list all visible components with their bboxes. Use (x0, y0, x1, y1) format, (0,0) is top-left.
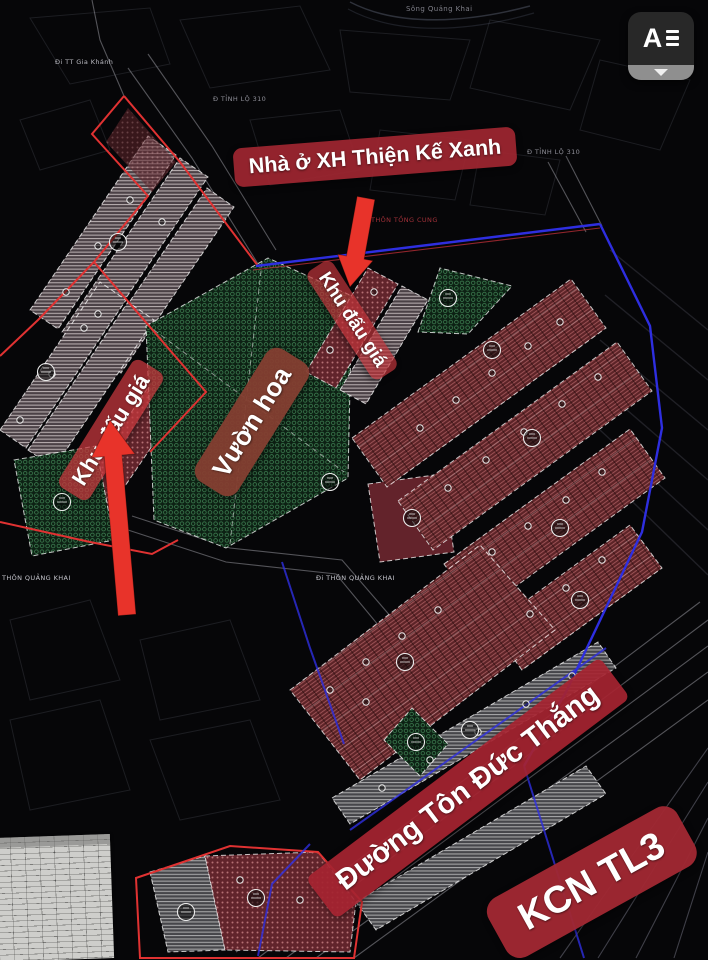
road-label-tl310-right: Đ TỈNH LỘ 310 (527, 148, 580, 156)
road-label-tl310-left: Đ TỈNH LỘ 310 (213, 95, 266, 103)
hamburger-bars-icon (666, 30, 679, 46)
ae-logo-letter: A (643, 25, 663, 52)
road-label-quang-khai: Đi THÔN QUẢNG KHAI (316, 574, 395, 582)
river-label: Sông Quảng Khai (406, 5, 472, 13)
hamlet-label-tong-cung: THÔN TỒNG CUNG (371, 216, 438, 224)
ae-dropdown-strip[interactable] (628, 65, 694, 80)
hamlet-label-quang-khai: THÔN QUẢNG KHAI (2, 574, 71, 582)
chevron-down-icon (654, 69, 668, 76)
legend-table (0, 834, 114, 960)
ae-logo: A (628, 12, 694, 64)
road-label-gia-khanh: Đi TT Gia Khánh (55, 58, 113, 66)
planning-map-screenshot: Sông Quảng Khai Đi TT Gia Khánh Đ TỈNH L… (0, 0, 708, 960)
ae-overlay-widget[interactable]: A (628, 12, 694, 80)
